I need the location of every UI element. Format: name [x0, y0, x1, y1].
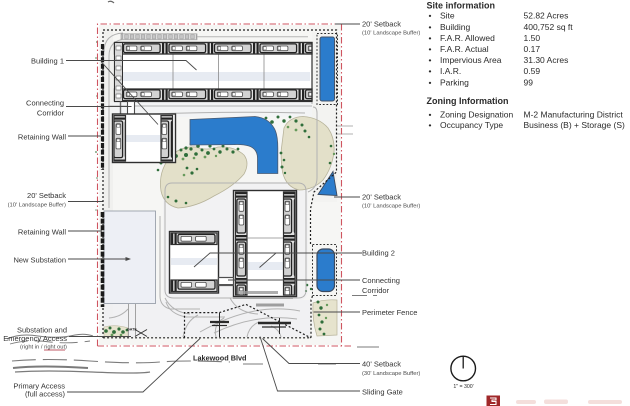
svg-text:•: • [429, 120, 432, 130]
svg-text:I.A.R.: I.A.R. [440, 66, 461, 76]
svg-text:Retaining Wall: Retaining Wall [18, 133, 66, 142]
svg-text:F.A.R. Actual: F.A.R. Actual [440, 44, 489, 54]
svg-text:Site: Site [440, 11, 455, 21]
svg-text:(10' Landscape Buffer): (10' Landscape Buffer) [8, 203, 66, 209]
svg-text:1" = 300': 1" = 300' [453, 384, 473, 390]
svg-text:•: • [429, 44, 432, 54]
svg-text:Lakewood Blvd: Lakewood Blvd [193, 354, 247, 363]
svg-text:•: • [429, 11, 432, 21]
svg-text:1.50: 1.50 [524, 33, 541, 43]
svg-text:New Substation: New Substation [13, 256, 66, 265]
svg-text:•: • [429, 109, 432, 119]
svg-text:•: • [429, 55, 432, 65]
svg-text:M-2 Manufacturing District: M-2 Manufacturing District [524, 109, 624, 119]
svg-text:0.17: 0.17 [524, 44, 541, 54]
svg-text:0.59: 0.59 [524, 66, 541, 76]
svg-text:F.A.R. Allowed: F.A.R. Allowed [440, 33, 495, 43]
svg-text:Connecting: Connecting [362, 276, 400, 285]
svg-text:Corridor: Corridor [37, 109, 65, 118]
svg-text:20' Setback: 20' Setback [27, 191, 66, 200]
svg-text:•: • [429, 22, 432, 32]
svg-text:•: • [429, 66, 432, 76]
svg-text:20' Setback: 20' Setback [362, 20, 401, 29]
svg-text:(30' Landscape Buffer): (30' Landscape Buffer) [362, 371, 420, 377]
svg-text:Connecting: Connecting [26, 99, 64, 108]
svg-text:Occupancy Type: Occupancy Type [440, 120, 503, 130]
svg-text:31.30 Acres: 31.30 Acres [524, 55, 569, 65]
svg-text:99: 99 [524, 77, 534, 87]
svg-text:400,752 sq ft: 400,752 sq ft [524, 22, 574, 32]
svg-text:Corridor: Corridor [362, 286, 390, 295]
svg-text:(10' Landscape Buffer): (10' Landscape Buffer) [362, 204, 420, 210]
svg-text:GATE: GATE [127, 328, 137, 332]
svg-text:Parking: Parking [440, 77, 469, 87]
svg-text:Emergency Access: Emergency Access [3, 334, 67, 343]
svg-text:Building 2: Building 2 [362, 249, 395, 258]
svg-text:Retaining Wall: Retaining Wall [18, 228, 66, 237]
svg-text:Sliding Gate: Sliding Gate [362, 388, 403, 397]
svg-text:Impervious Area: Impervious Area [440, 55, 502, 65]
svg-text:(right in / right out): (right in / right out) [20, 345, 67, 351]
svg-text:Building: Building [440, 22, 471, 32]
svg-text:Business (B) + Storage (S): Business (B) + Storage (S) [524, 120, 626, 130]
svg-text:•: • [429, 33, 432, 43]
svg-text:Building 1: Building 1 [31, 57, 64, 66]
svg-text:•: • [429, 77, 432, 87]
svg-text:Zoning Information: Zoning Information [427, 96, 509, 106]
svg-text:Zoning Designation: Zoning Designation [440, 109, 514, 119]
svg-text:Perimeter Fence: Perimeter Fence [362, 308, 417, 317]
svg-text:40' Setback: 40' Setback [362, 360, 401, 369]
svg-text:20' Setback: 20' Setback [362, 193, 401, 202]
svg-text:(full access): (full access) [25, 390, 66, 399]
svg-text:(10' Landscape Buffer): (10' Landscape Buffer) [362, 31, 420, 37]
svg-text:Site information: Site information [427, 1, 496, 11]
svg-text:52.82 Acres: 52.82 Acres [524, 11, 569, 21]
